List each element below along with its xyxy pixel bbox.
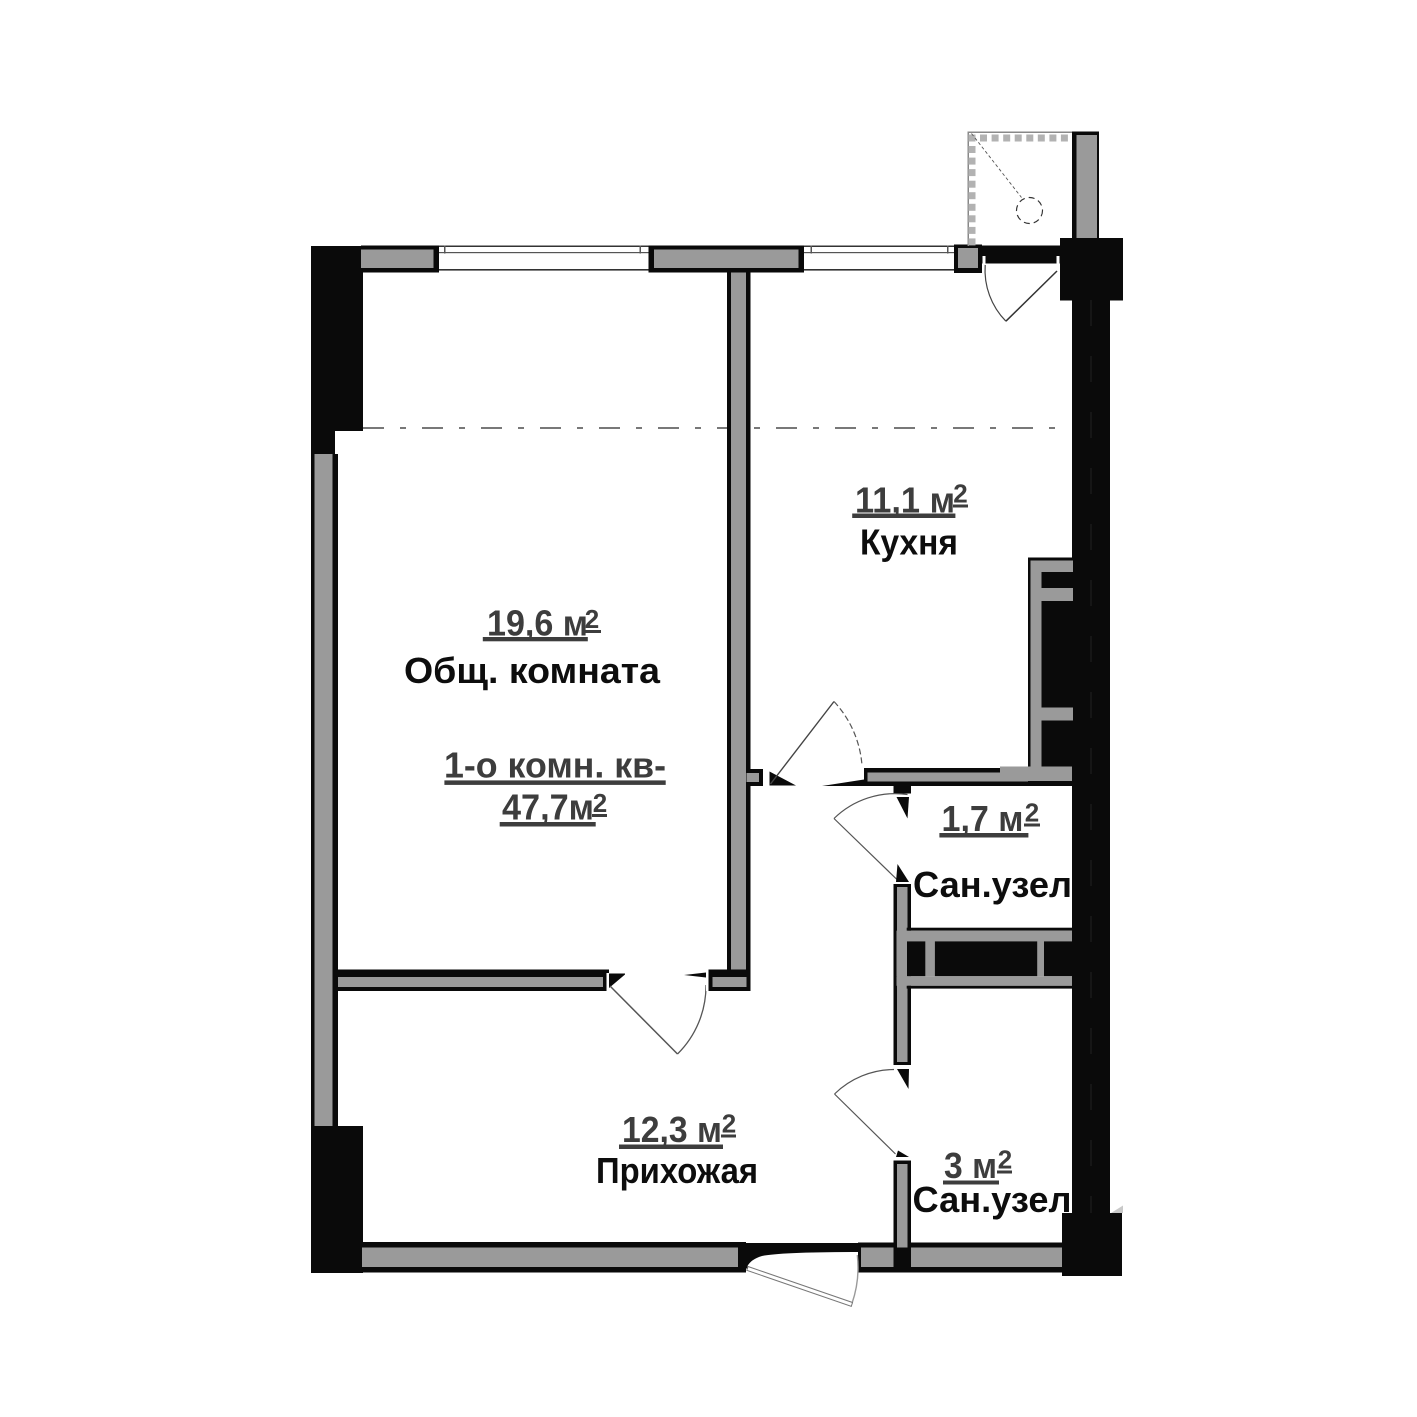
svg-text:Общ. комната: Общ. комната (404, 650, 661, 691)
svg-text:1,7 м: 1,7 м (942, 798, 1024, 839)
svg-text:Кухня: Кухня (860, 522, 958, 563)
svg-text:12,3 м: 12,3 м (622, 1109, 722, 1150)
svg-text:Прихожая: Прихожая (596, 1150, 758, 1191)
svg-text:2: 2 (953, 479, 967, 509)
svg-text:Сан.узел: Сан.узел (913, 1179, 1072, 1220)
svg-text:2: 2 (722, 1109, 736, 1139)
svg-text:Сан.узел: Сан.узел (913, 864, 1072, 905)
svg-text:2: 2 (593, 788, 607, 818)
svg-text:47,7м: 47,7м (502, 787, 594, 828)
svg-text:2: 2 (585, 604, 599, 634)
svg-text:2: 2 (1025, 798, 1039, 828)
svg-text:1-о комн. кв-: 1-о комн. кв- (444, 745, 666, 786)
svg-text:2: 2 (998, 1145, 1012, 1175)
